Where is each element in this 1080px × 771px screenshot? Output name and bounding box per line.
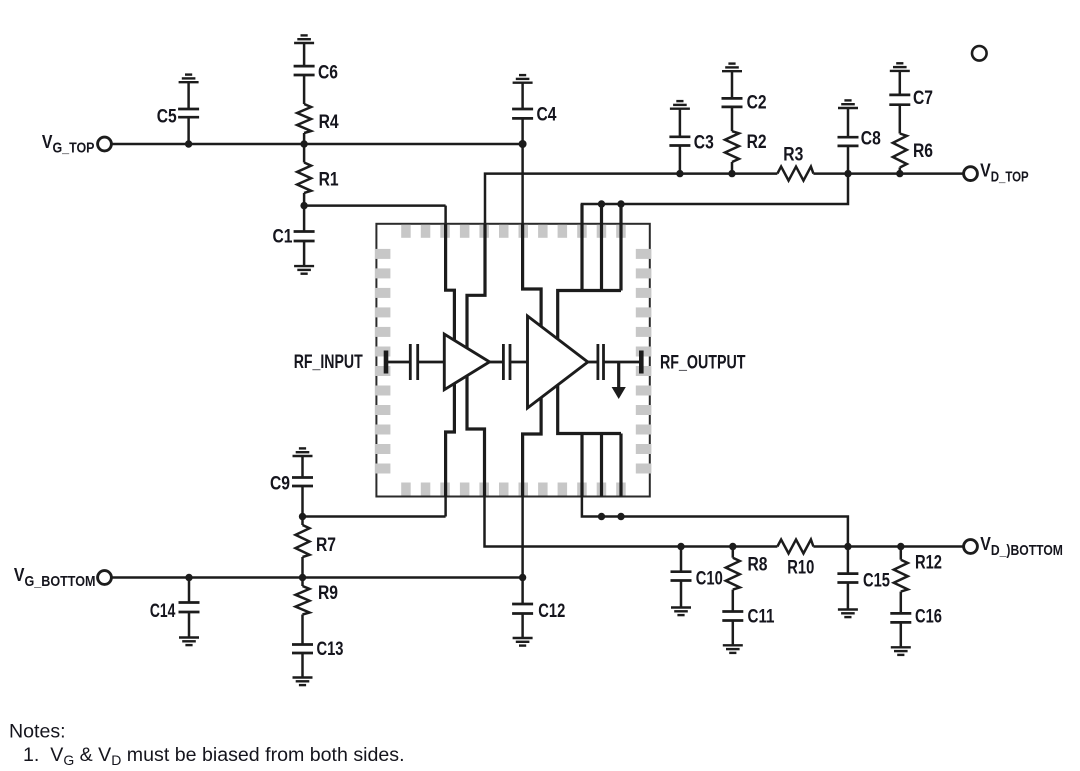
- svg-text:C12: C12: [538, 600, 565, 622]
- svg-text:C1: C1: [273, 226, 293, 248]
- svg-text:C9: C9: [270, 473, 290, 495]
- svg-text:C16: C16: [915, 605, 942, 627]
- svg-text:R10: R10: [787, 557, 814, 579]
- svg-text:C13: C13: [317, 638, 344, 660]
- svg-text:R6: R6: [913, 140, 933, 162]
- svg-text:C5: C5: [157, 105, 177, 127]
- svg-text:Notes:: Notes:: [9, 721, 66, 743]
- svg-text:R8: R8: [748, 554, 768, 576]
- svg-text:C3: C3: [694, 132, 714, 154]
- svg-text:C11: C11: [748, 605, 775, 627]
- svg-text:R7: R7: [316, 534, 336, 556]
- svg-text:C2: C2: [747, 92, 767, 114]
- svg-text:R2: R2: [747, 131, 767, 153]
- svg-text:C6: C6: [318, 61, 338, 83]
- svg-text:C7: C7: [913, 87, 933, 109]
- svg-text:RF_OUTPUT: RF_OUTPUT: [660, 352, 746, 374]
- svg-text:C15: C15: [863, 570, 890, 592]
- svg-text:R12: R12: [915, 552, 942, 574]
- svg-text:RF_INPUT: RF_INPUT: [294, 351, 363, 373]
- svg-text:R4: R4: [319, 111, 339, 133]
- svg-text:C8: C8: [861, 128, 881, 150]
- svg-text:C10: C10: [696, 568, 723, 590]
- svg-text:C14: C14: [150, 600, 176, 622]
- svg-text:C4: C4: [537, 103, 557, 125]
- svg-text:R1: R1: [319, 169, 339, 191]
- svg-text:R3: R3: [783, 143, 803, 165]
- svg-text:R9: R9: [318, 582, 338, 604]
- svg-text:1. VG & VD must be biased fro: 1. VG & VD must be biased from both side…: [23, 744, 405, 768]
